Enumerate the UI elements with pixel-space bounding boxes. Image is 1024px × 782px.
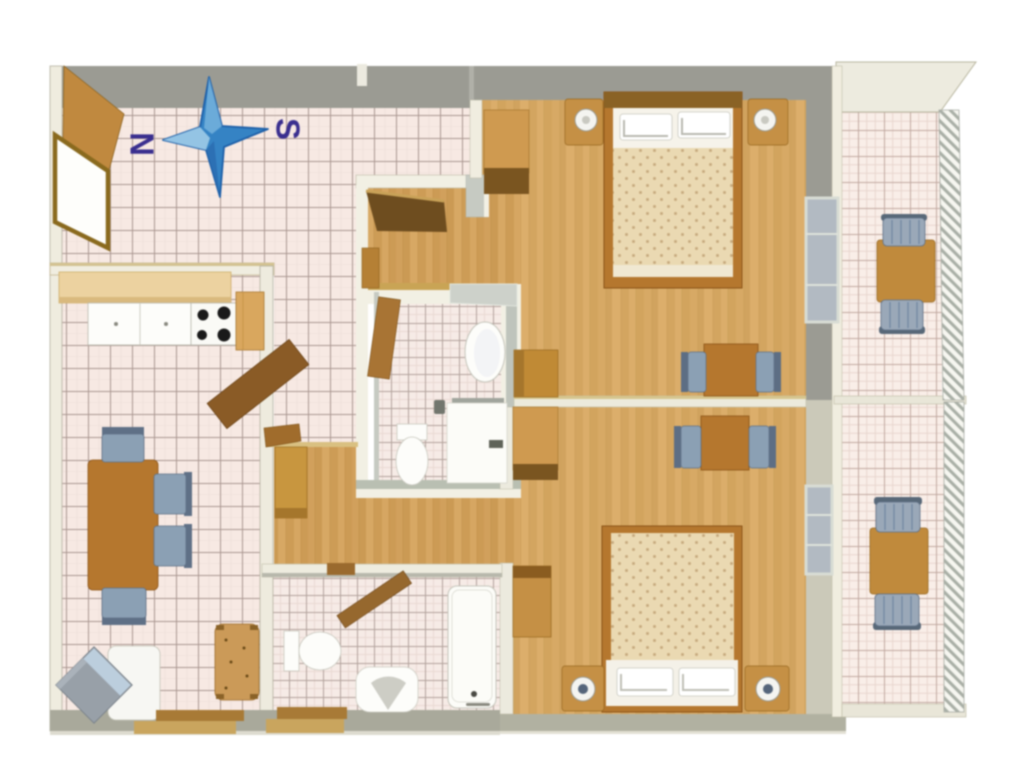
- svg-text:N: N: [124, 132, 161, 156]
- svg-text:S: S: [270, 118, 307, 140]
